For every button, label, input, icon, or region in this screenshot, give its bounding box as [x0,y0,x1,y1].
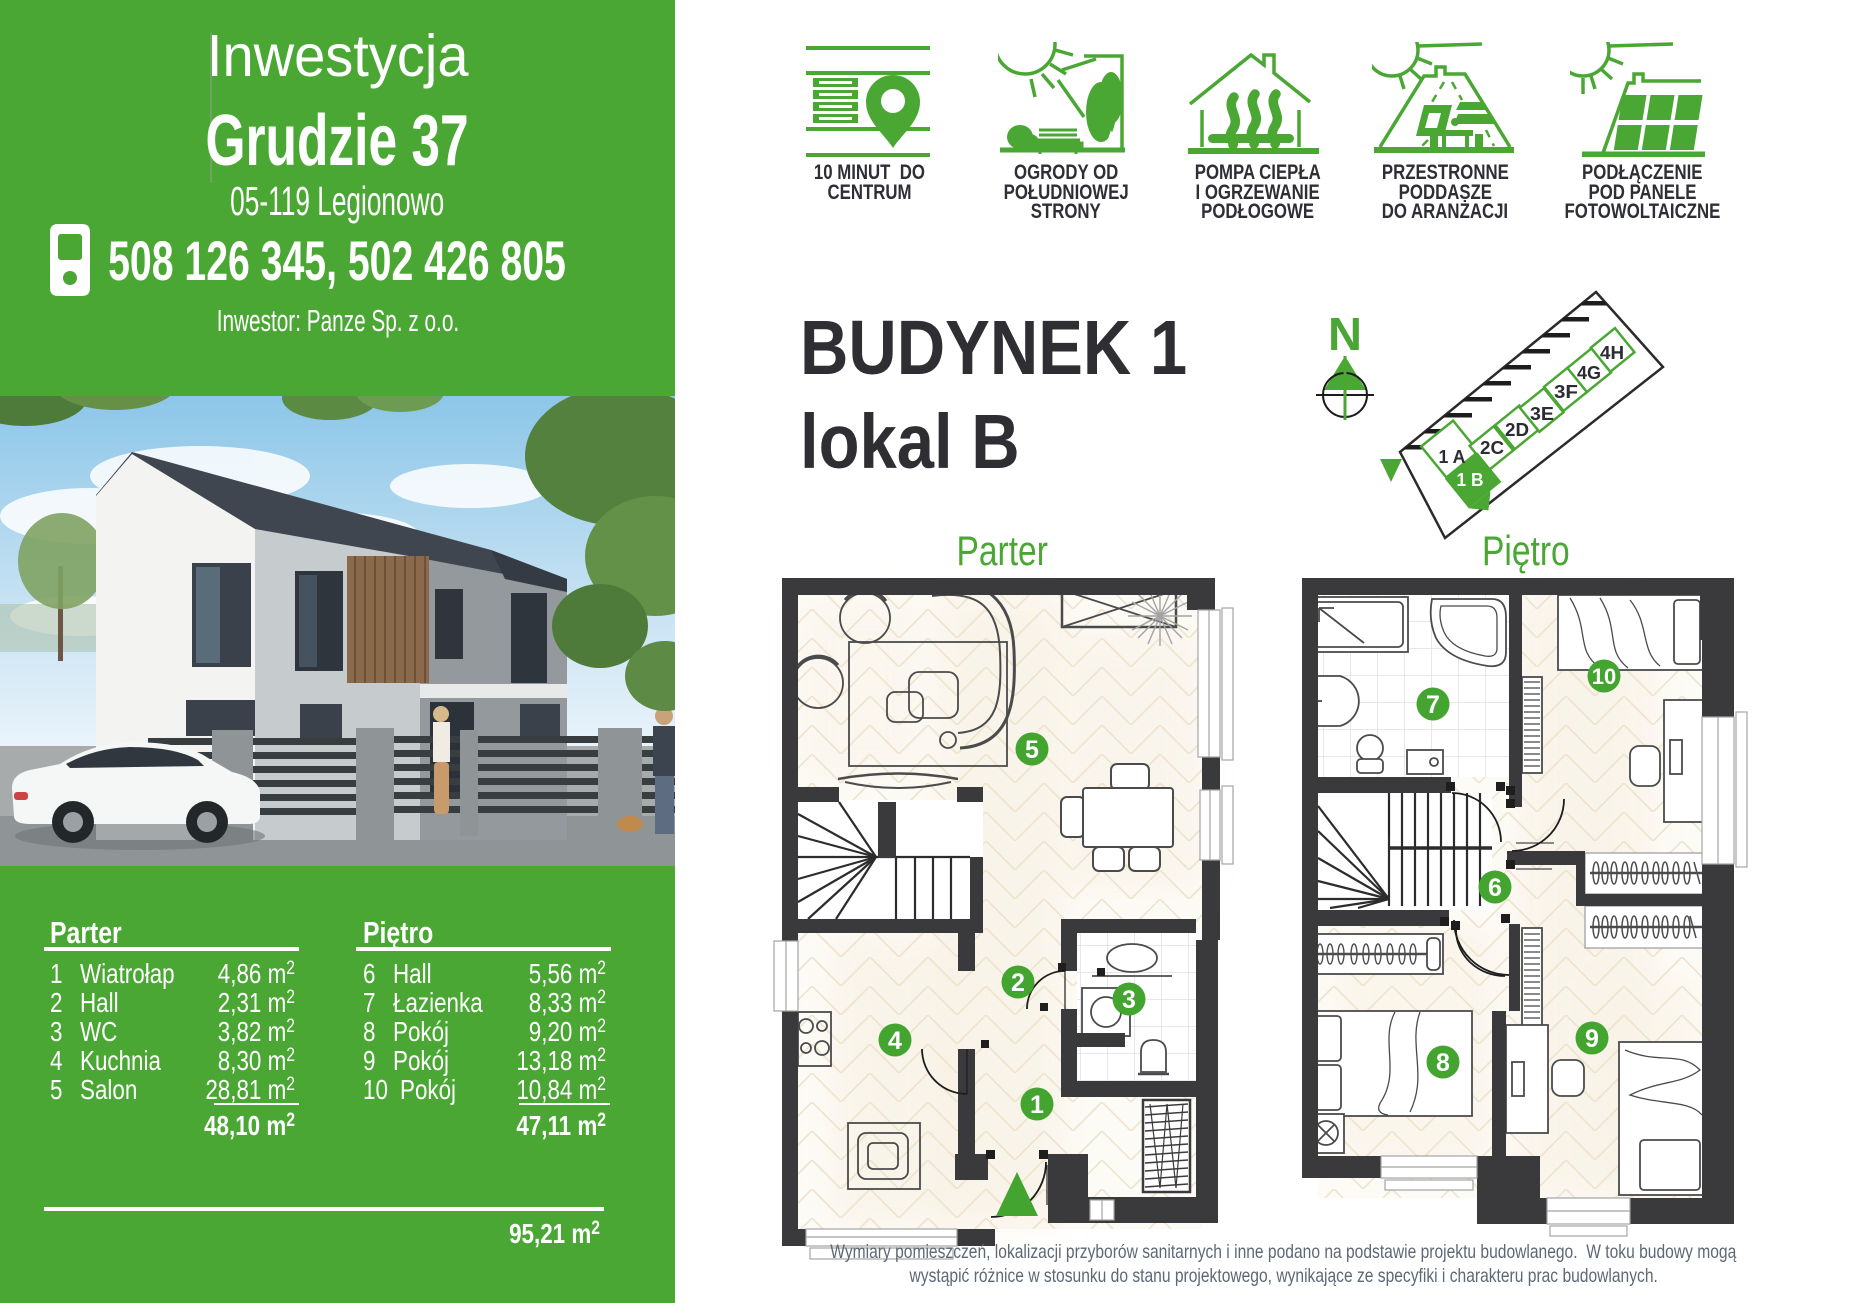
svg-text:4H: 4H [1600,343,1624,363]
svg-text:6: 6 [1488,874,1502,902]
svg-text:2C: 2C [1480,438,1504,458]
svg-text:2D: 2D [1505,420,1529,440]
svg-text:9: 9 [1585,1025,1599,1053]
svg-text:4: 4 [888,1027,902,1055]
svg-text:8: 8 [1436,1049,1450,1077]
svg-text:10: 10 [1592,664,1616,689]
svg-text:3E: 3E [1530,404,1554,424]
svg-text:5: 5 [1025,736,1039,764]
svg-text:1: 1 [1030,1091,1044,1119]
svg-text:1 B: 1 B [1457,470,1484,490]
svg-text:4G: 4G [1577,363,1601,383]
svg-text:3F: 3F [1554,382,1578,402]
svg-text:1 A: 1 A [1439,447,1466,467]
svg-text:3: 3 [1122,986,1136,1014]
svg-text:2: 2 [1011,969,1025,997]
svg-text:N: N [1328,308,1362,360]
svg-text:7: 7 [1426,691,1440,719]
